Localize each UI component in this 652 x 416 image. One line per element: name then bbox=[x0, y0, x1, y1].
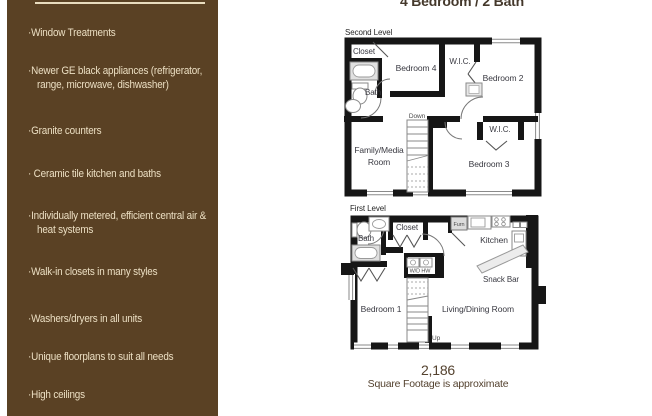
bathtub-icon bbox=[350, 62, 378, 80]
square-footage-value: 2,186 bbox=[338, 362, 538, 378]
room-label-bedroom4: Bedroom 4 bbox=[396, 63, 437, 73]
room-label-family-media-2: Room bbox=[368, 157, 390, 167]
washer-dryer-icon bbox=[407, 258, 432, 267]
room-label-wic-top: W.I.C. bbox=[449, 57, 470, 66]
linen-box bbox=[466, 83, 482, 96]
first-level-plan: First Level bbox=[341, 204, 546, 351]
level-label: First Level bbox=[350, 204, 386, 213]
room-label-washer-dryer: W/D HW bbox=[410, 269, 432, 275]
room-label-living-dining: Living/Dining Room bbox=[442, 304, 514, 314]
bathtub-icon bbox=[352, 245, 380, 261]
room-label-bath: Bath bbox=[358, 234, 374, 243]
room-label-furnace: Furn bbox=[454, 222, 465, 228]
room-label-wic-right: W.I.C. bbox=[489, 125, 510, 134]
fridge-icon bbox=[513, 222, 527, 228]
range-icon bbox=[492, 216, 510, 227]
floorplan-canvas: Second Level bbox=[0, 0, 652, 416]
kitchen-sink-icon bbox=[468, 216, 491, 229]
sink-icon bbox=[369, 217, 389, 231]
room-label-closet: Closet bbox=[396, 223, 419, 232]
room-label-bedroom3: Bedroom 3 bbox=[469, 159, 510, 169]
room-label-closet: Closet bbox=[353, 47, 376, 56]
level-label: Second Level bbox=[345, 28, 393, 37]
room-label-snack-bar: Snack Bar bbox=[483, 275, 519, 284]
stairs-up-icon bbox=[407, 278, 428, 342]
sink-icon bbox=[346, 100, 361, 113]
flyer-page: ·Window Treatments ·Newer GE black appli… bbox=[0, 0, 652, 416]
square-footage-note: Square Footage is approximate bbox=[338, 378, 538, 390]
room-label-kitchen: Kitchen bbox=[480, 235, 508, 245]
room-label-family-media: Family/Media bbox=[354, 145, 404, 155]
room-label-bath: Bath bbox=[365, 88, 381, 97]
stairs-label-up: Up bbox=[432, 335, 441, 342]
stairs-down-icon bbox=[407, 120, 428, 192]
room-label-bedroom2: Bedroom 2 bbox=[483, 73, 524, 83]
second-level-plan: Second Level bbox=[344, 28, 543, 198]
stairs-label-down: Down bbox=[409, 113, 426, 120]
room-label-bedroom1: Bedroom 1 bbox=[361, 304, 402, 314]
